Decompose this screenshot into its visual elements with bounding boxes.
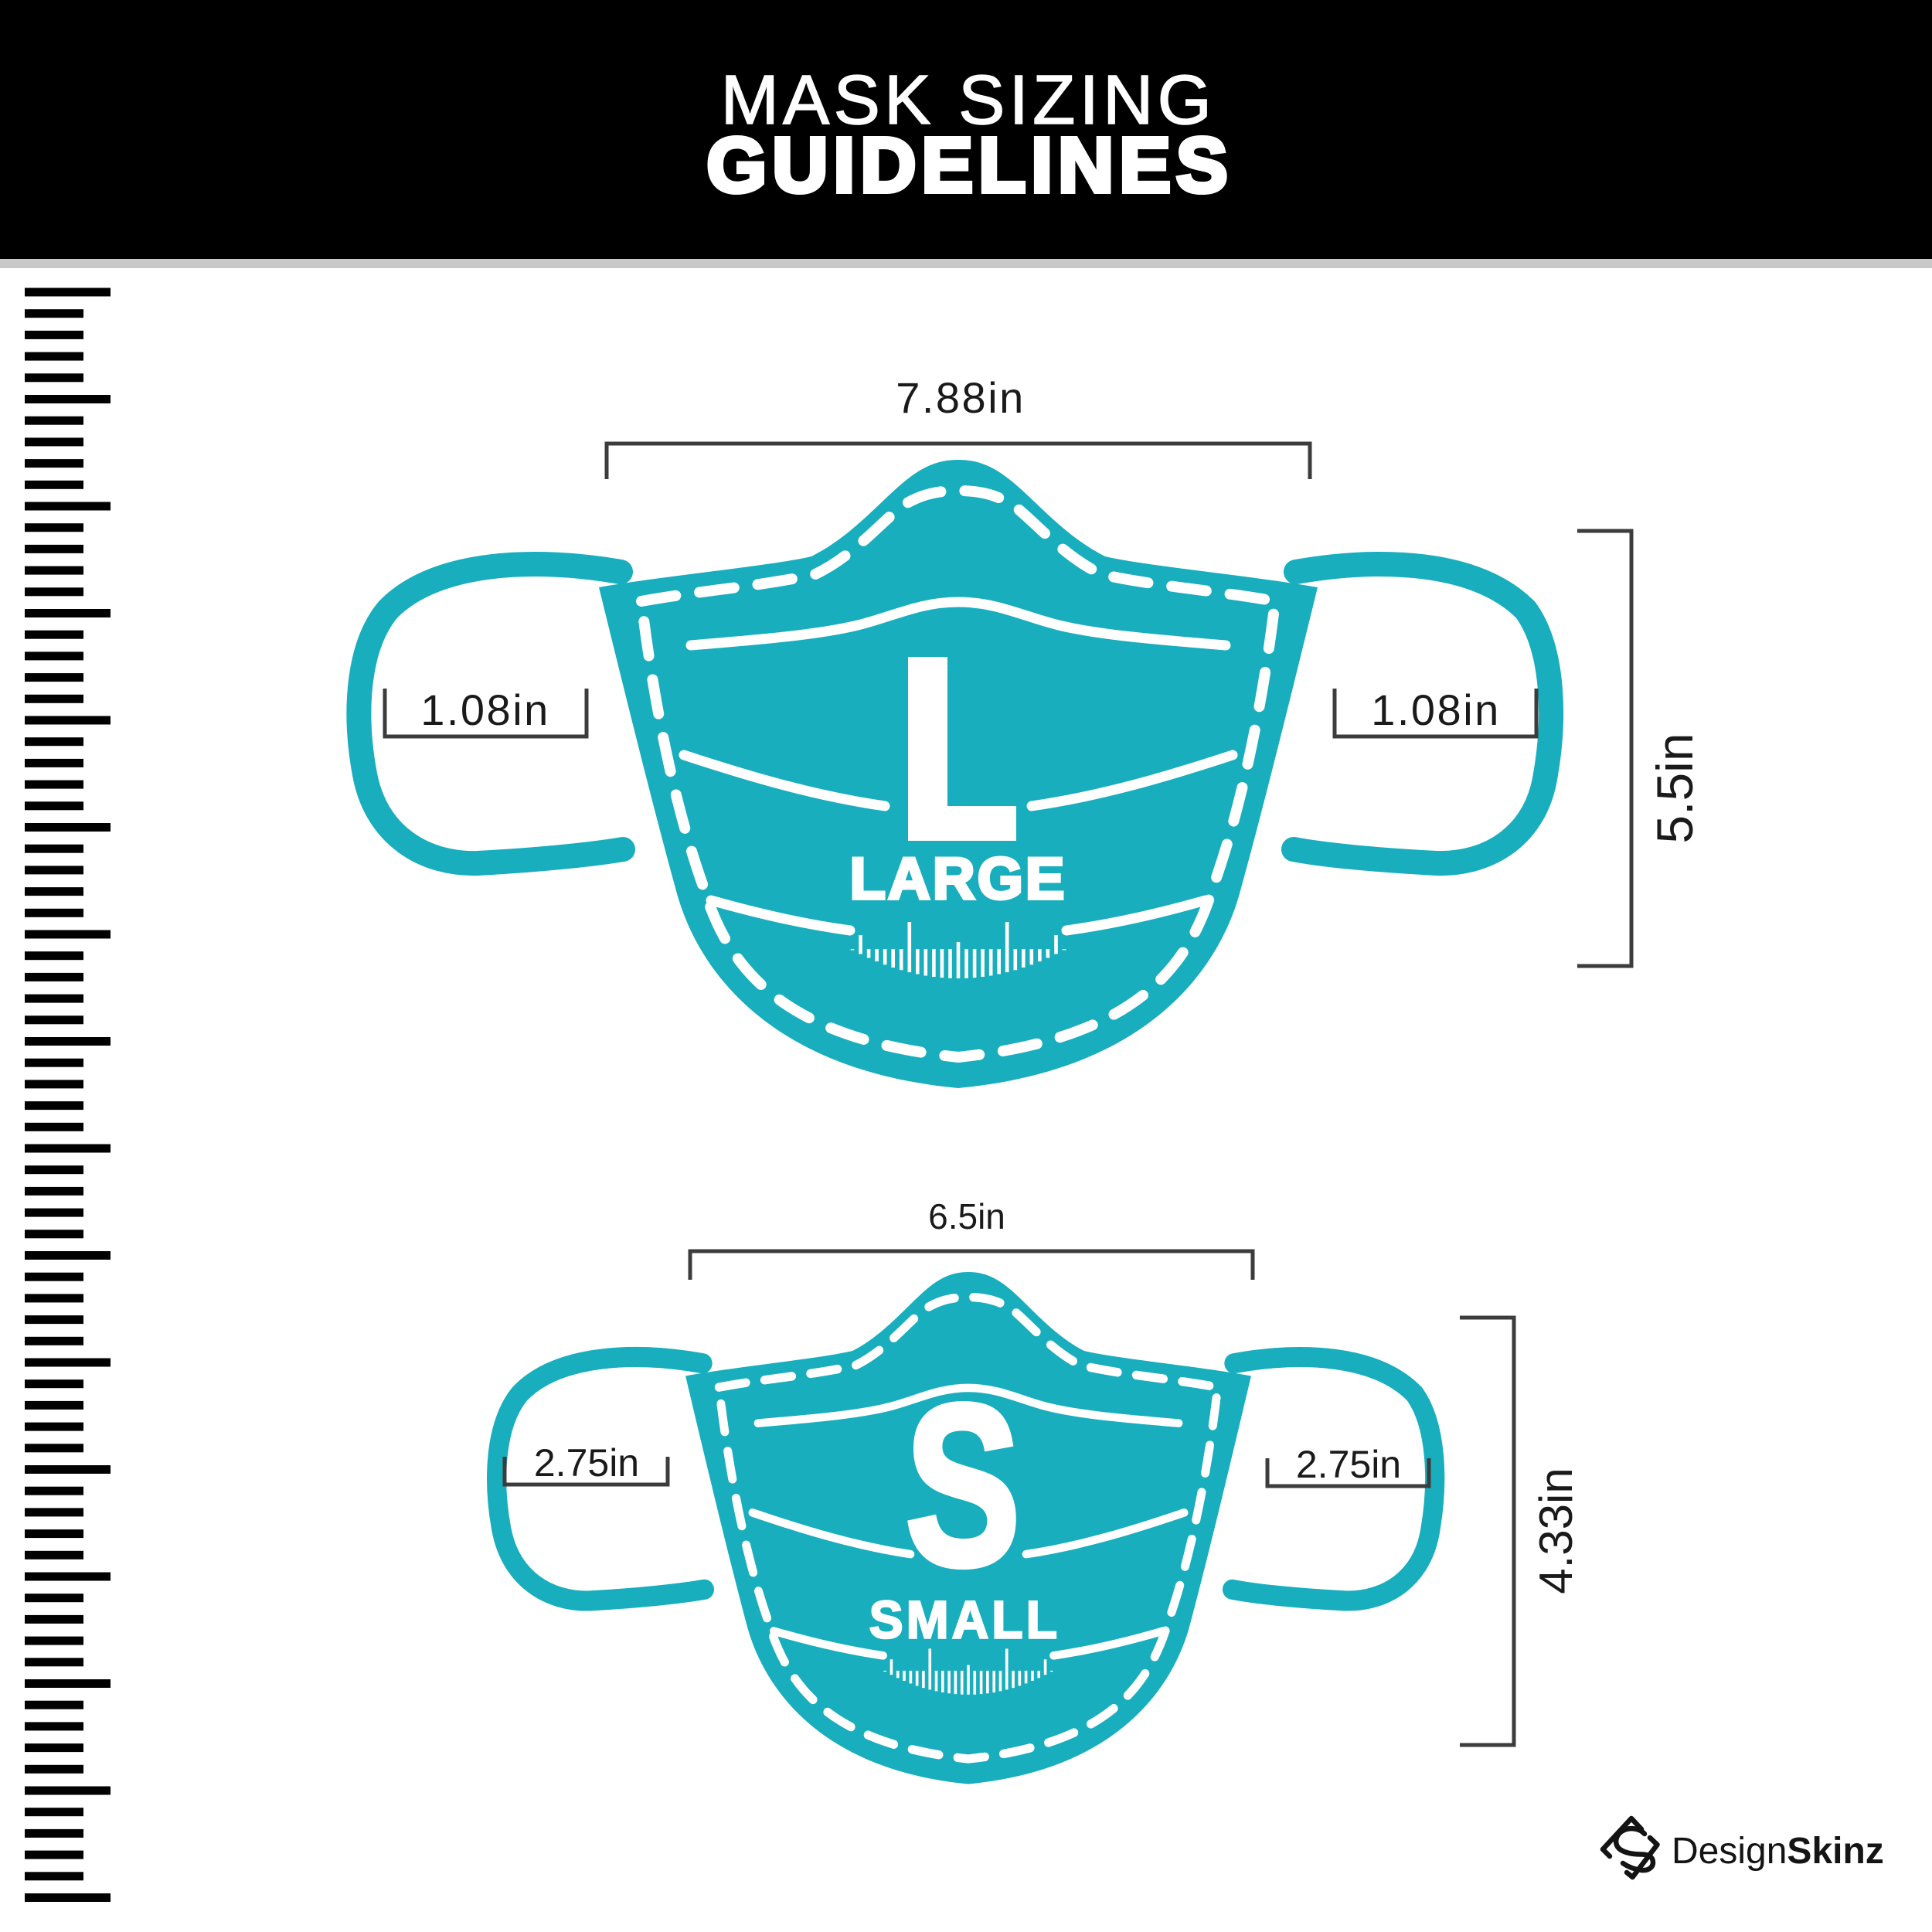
svg-text:1.08in: 1.08in <box>1371 685 1501 734</box>
svg-text:7.88in: 7.88in <box>896 373 1026 422</box>
svg-text:DesignSkinz: DesignSkinz <box>1672 1831 1884 1872</box>
svg-text:2.75in: 2.75in <box>534 1441 639 1485</box>
svg-text:1.08in: 1.08in <box>420 685 550 734</box>
svg-text:S: S <box>905 1356 1020 1613</box>
svg-text:2.75in: 2.75in <box>1296 1443 1401 1486</box>
svg-text:SMALL: SMALL <box>869 1590 1060 1649</box>
svg-text:LARGE: LARGE <box>850 846 1067 912</box>
svg-text:6.5in: 6.5in <box>928 1196 1005 1236</box>
svg-text:5.5in: 5.5in <box>1646 733 1703 843</box>
svg-text:GUIDELINES: GUIDELINES <box>706 122 1233 209</box>
svg-text:4.33in: 4.33in <box>1530 1468 1582 1594</box>
